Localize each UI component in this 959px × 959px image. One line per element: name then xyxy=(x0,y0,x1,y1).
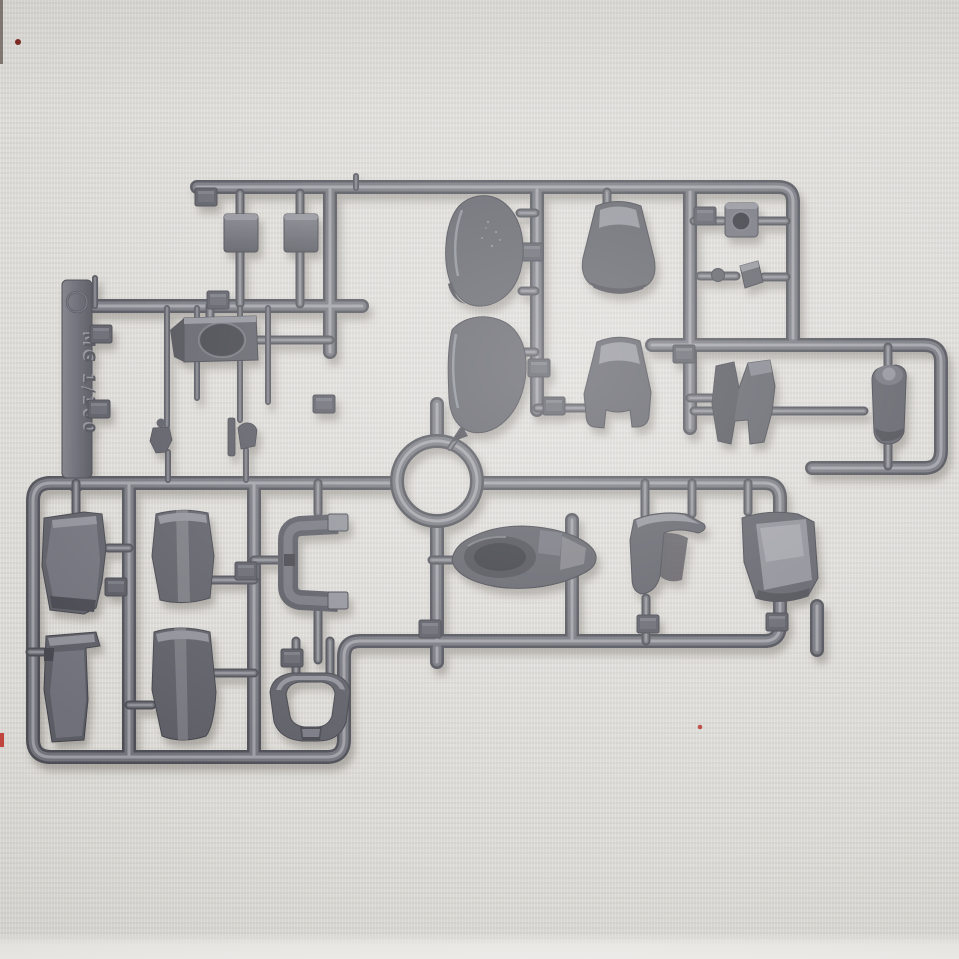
part-collar-armor-pronged xyxy=(584,337,651,428)
red-speck-lower-right xyxy=(698,725,703,730)
photo-edge-artifacts xyxy=(0,0,3,64)
part-head-visor-block xyxy=(170,316,258,362)
red-dot-top-left xyxy=(15,39,21,45)
part-canopy-shell-lower xyxy=(448,317,526,442)
part-ankle-cylinder xyxy=(872,365,906,444)
part-canopy-shell-upper xyxy=(446,196,523,306)
ring-junction xyxy=(397,441,477,521)
part-shin-shell-notched xyxy=(44,632,100,742)
part-shin-shell-rounded xyxy=(152,628,216,740)
red-dash-left-edge xyxy=(0,733,4,747)
sprue-photo: MG 1/100 MG 1/100 xyxy=(0,0,959,959)
part-collar-armor-upper xyxy=(582,202,655,294)
part-waist-frame-ring xyxy=(270,673,350,741)
part-square-grommet xyxy=(725,203,758,237)
sprue-photo-svg: MG 1/100 MG 1/100 xyxy=(0,0,959,959)
background-bottom-strip xyxy=(0,933,959,959)
part-small-plate-a xyxy=(224,214,258,252)
part-c-clamp xyxy=(284,514,348,609)
part-shoulder-shell-glossy xyxy=(742,512,818,601)
ball-joint-knob xyxy=(712,269,725,282)
part-thigh-shell-right xyxy=(152,510,214,603)
thin-gate-rods xyxy=(95,176,462,480)
part-small-plate-b xyxy=(284,214,318,252)
runner-label: MG 1/100 xyxy=(81,333,99,437)
part-wedge-block xyxy=(740,261,763,288)
part-shoulder-shell-curved xyxy=(630,513,705,594)
part-thigh-shell-left xyxy=(42,512,106,614)
pilot-figure-seated xyxy=(228,418,257,456)
part-claw-fin xyxy=(712,360,775,444)
